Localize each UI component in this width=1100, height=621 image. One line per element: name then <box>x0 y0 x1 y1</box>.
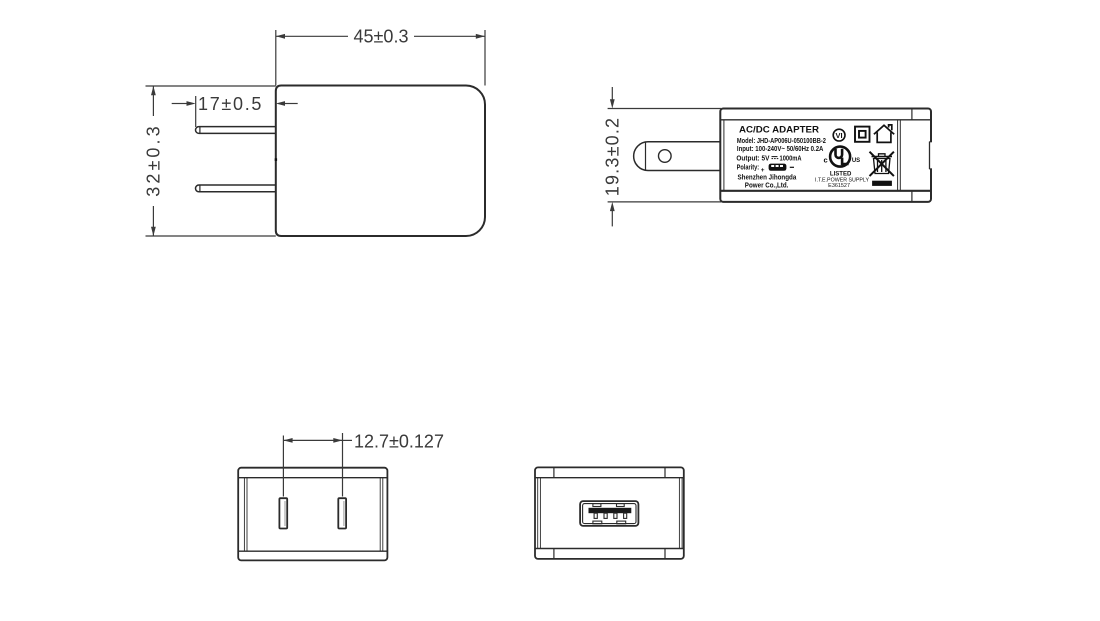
svg-text:Output: 5V: Output: 5V <box>736 155 769 162</box>
svg-text:c: c <box>824 156 828 165</box>
svg-text:19.3±0.2: 19.3±0.2 <box>603 117 623 197</box>
svg-text:Polarity:: Polarity: <box>737 165 760 172</box>
svg-text:LISTED: LISTED <box>830 170 852 177</box>
svg-text:VI: VI <box>836 131 843 140</box>
svg-text:17±0.5: 17±0.5 <box>198 94 263 114</box>
svg-text:Model: JHD-AP006U-050100BB-2: Model: JHD-AP006U-050100BB-2 <box>737 138 826 145</box>
svg-text:Input: 100-240V~ 50/60Hz 0.2: Input: 100-240V~ 50/60Hz 0.2A <box>737 146 824 153</box>
svg-text:Shenzhen Jihongda: Shenzhen Jihongda <box>738 174 797 181</box>
svg-text:1000mA: 1000mA <box>780 155 802 162</box>
svg-text:US: US <box>852 158 860 164</box>
svg-text:Power Co.,Ltd.: Power Co.,Ltd. <box>745 182 789 189</box>
svg-text:45±0.3: 45±0.3 <box>354 27 409 47</box>
svg-text:+: + <box>761 167 765 174</box>
svg-text:AC/DC ADAPTER: AC/DC ADAPTER <box>739 125 819 135</box>
svg-text:32±0.3: 32±0.3 <box>144 123 164 197</box>
svg-text:12.7±0.127: 12.7±0.127 <box>354 431 444 451</box>
svg-text:E361527: E361527 <box>828 183 850 189</box>
